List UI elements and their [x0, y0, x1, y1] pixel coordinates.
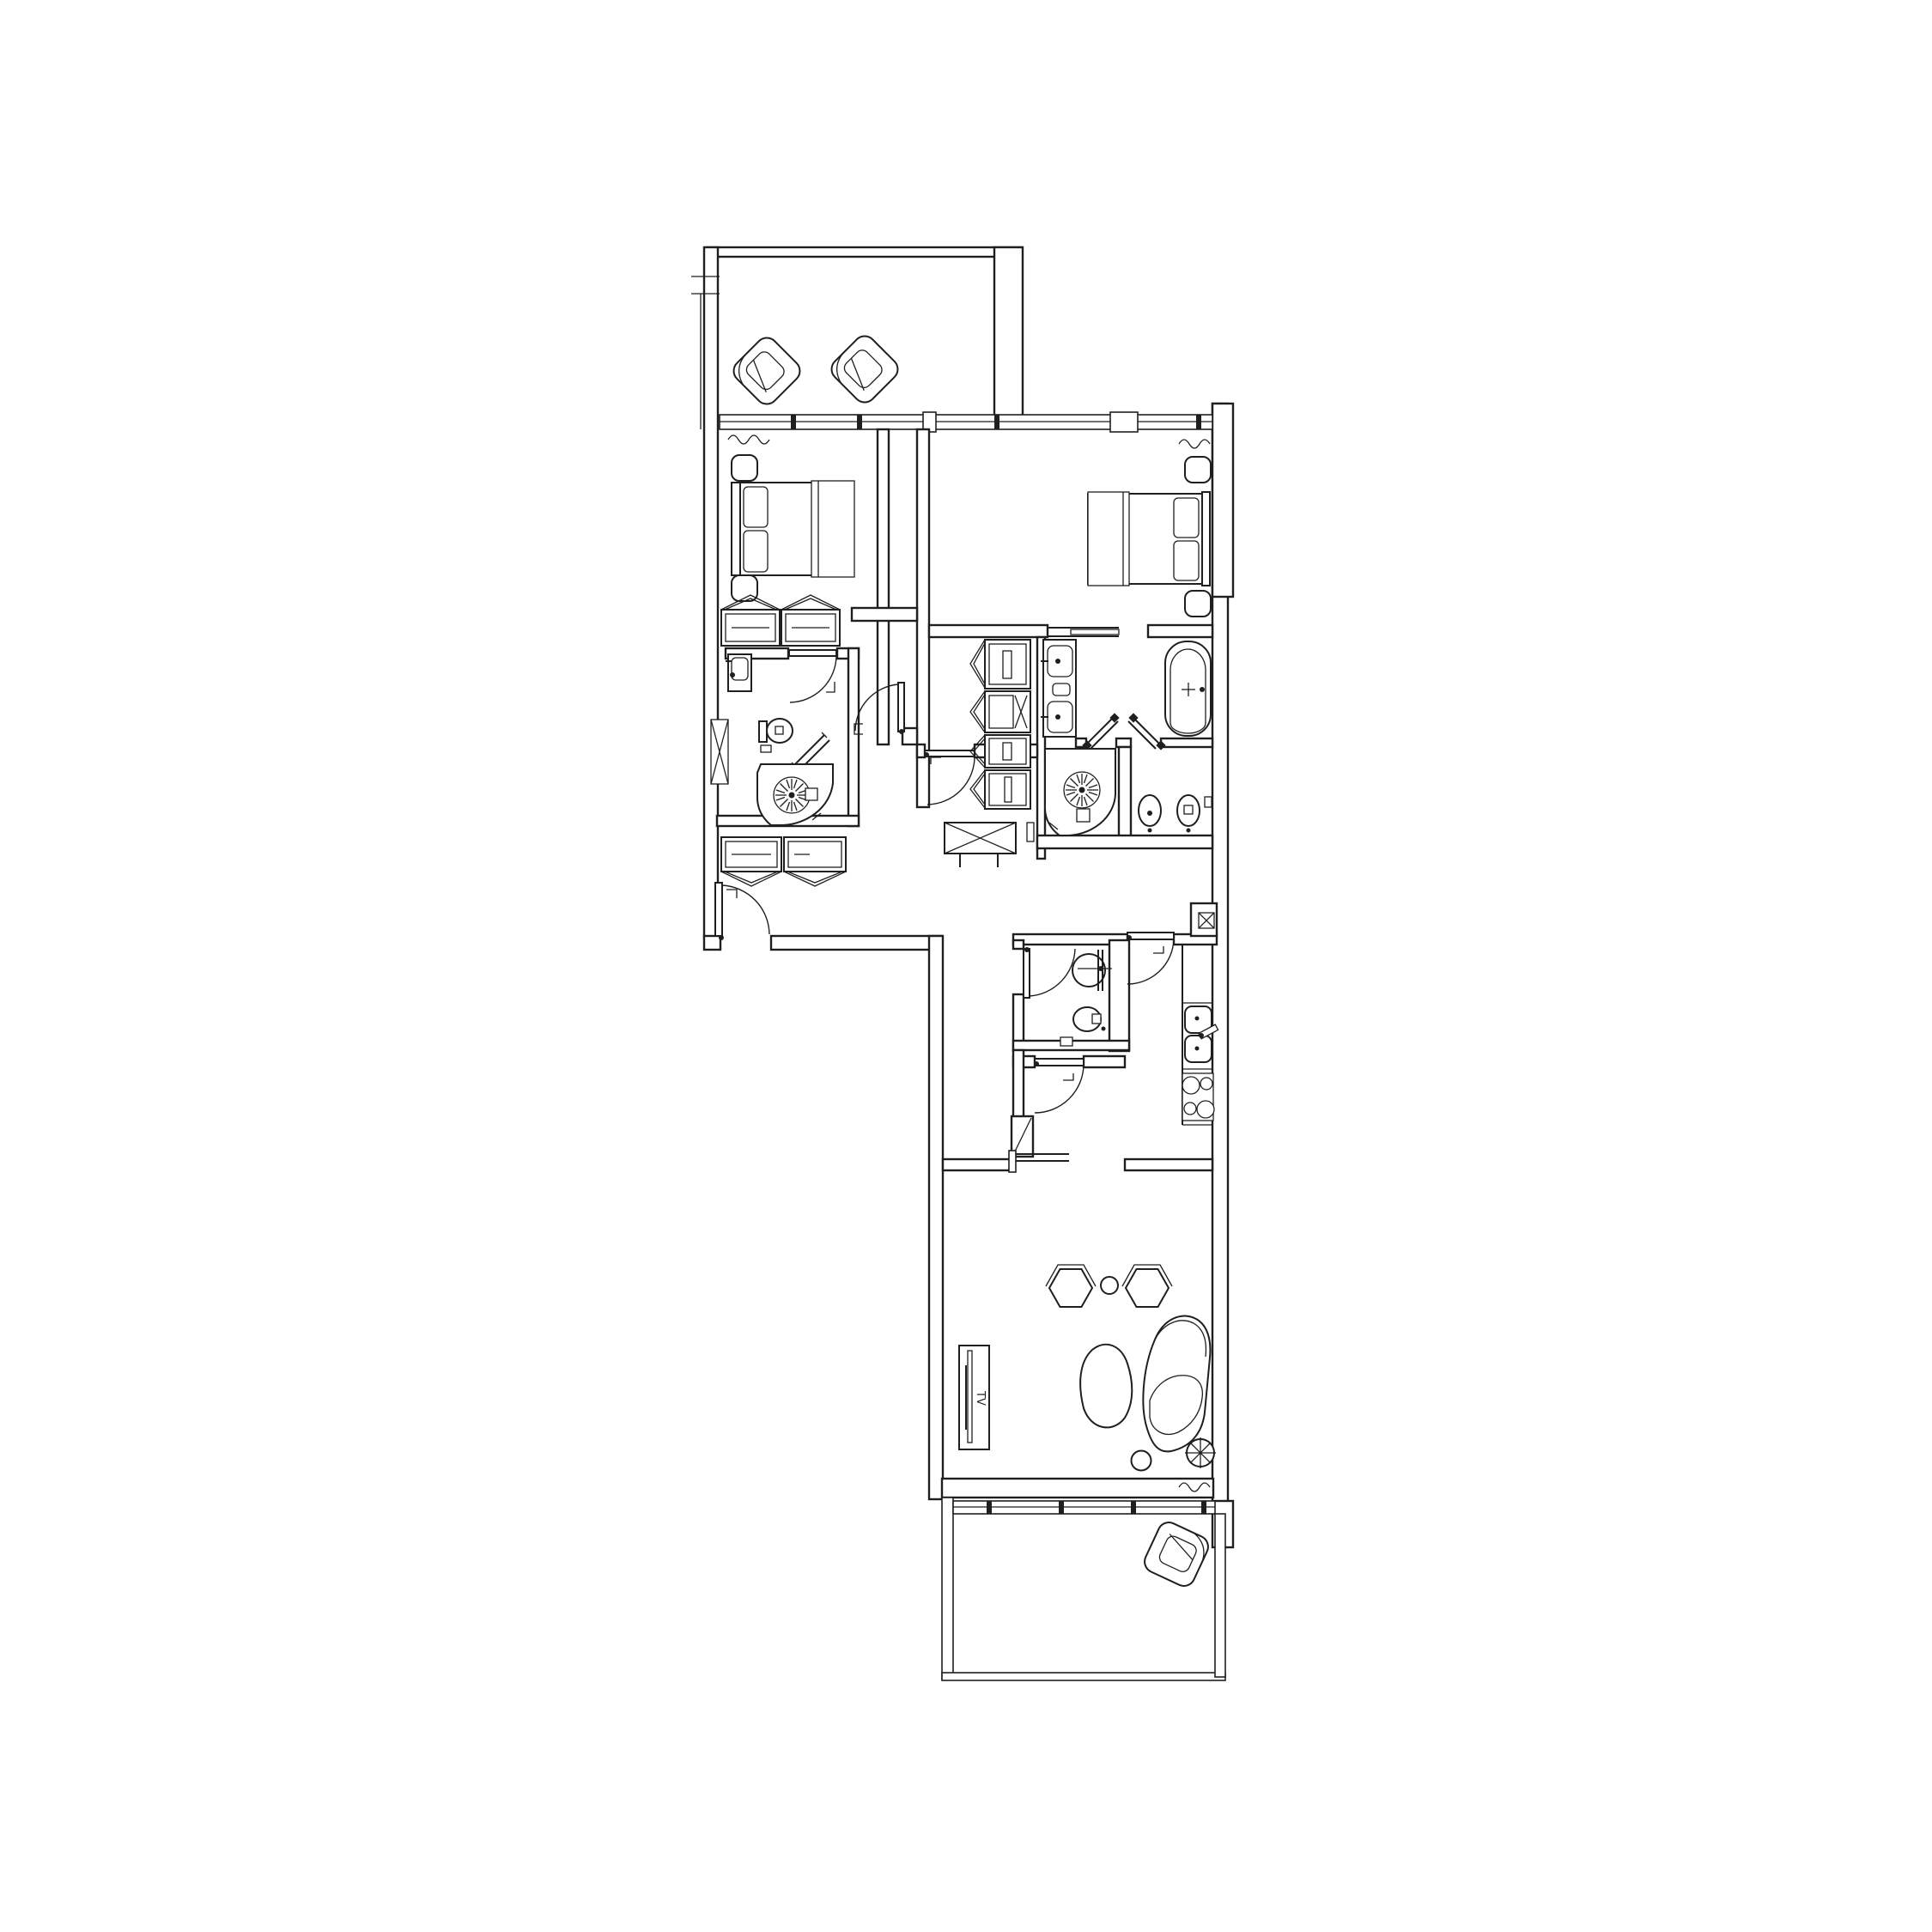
walkthrough-closet	[970, 640, 1030, 809]
tv-label: TV	[974, 1390, 987, 1406]
guest-wc	[1060, 950, 1112, 1046]
pouf-icon	[1132, 1451, 1151, 1471]
balcony-left-wall	[942, 1498, 953, 1680]
entry-wall-right	[771, 936, 942, 950]
luggage-bench-icon	[945, 823, 1034, 867]
exterior-walls	[691, 247, 1233, 1680]
lounge-chair-icon	[729, 333, 805, 409]
wall-fixture	[1060, 1037, 1072, 1046]
terrace-right-pier	[994, 247, 1023, 419]
curtain-squiggle	[728, 435, 769, 444]
left-outer-wall	[704, 247, 718, 939]
toilet-icon	[1177, 795, 1212, 833]
round-side-table-icon	[1101, 1277, 1118, 1294]
nightstand-icon	[1185, 591, 1211, 617]
swing-door-icon	[1127, 933, 1174, 984]
floor-plan-page: TV	[0, 0, 1932, 1932]
tv-bench-icon: TV	[959, 1346, 989, 1449]
window-post-wide	[1110, 412, 1138, 432]
swing-door-icon	[924, 750, 975, 805]
bathtub-icon	[1165, 641, 1211, 736]
nightstand-icon	[1185, 457, 1211, 483]
bedroom2-bottom-wall-right	[1148, 625, 1212, 637]
coffee-table-icon	[1080, 1345, 1132, 1428]
nightstand-icon	[732, 455, 757, 481]
balcony-right-wall	[1215, 1514, 1225, 1677]
living-room: TV	[959, 1265, 1216, 1471]
living-left-wall	[929, 936, 943, 1499]
entry-wall-left-stub	[704, 936, 720, 950]
upper-terrace	[729, 331, 902, 409]
floor-plan-drawing: TV	[0, 0, 1932, 1932]
bath-bottom-wall	[1037, 835, 1212, 848]
right-pier-upper	[1212, 404, 1233, 597]
lower-balcony	[1141, 1519, 1212, 1589]
washbasin-icon	[726, 654, 751, 691]
bedroom-left	[721, 455, 854, 646]
shower-wc-divider	[1119, 747, 1131, 837]
double-bed-icon	[1088, 492, 1210, 586]
hex-side-table-icon	[1122, 1265, 1172, 1307]
sliding-door-post	[1009, 1151, 1016, 1172]
vestibule-top-wall	[852, 608, 917, 621]
toilet-icon	[1073, 1007, 1106, 1031]
corner-sink-icon	[1072, 950, 1112, 991]
bidet-icon	[1139, 795, 1161, 833]
balcony-bottom-wall	[942, 1673, 1225, 1680]
lounge-chair-icon	[1141, 1519, 1212, 1589]
shaft-x-symbol	[711, 720, 728, 784]
double-bed-icon	[732, 481, 854, 577]
toilet-icon	[759, 719, 793, 752]
guestwc-right-wall	[1109, 940, 1129, 1051]
terrace-top-wall	[707, 247, 1022, 257]
wardrobe-icon	[721, 837, 846, 886]
bedroom2-bottom-wall-left	[929, 625, 1048, 637]
angled-wc-door-icon	[1128, 713, 1166, 750]
wardrobe-icon	[970, 640, 1030, 809]
hex-side-table-icon	[1046, 1265, 1096, 1307]
ensuite-right-wall	[848, 648, 859, 826]
lounge-chair-icon	[827, 331, 902, 407]
angled-shower-door-icon	[1082, 713, 1119, 750]
bedrooms-divider-left	[878, 429, 889, 744]
curtain-squiggle	[1179, 440, 1210, 448]
swing-door-icon	[789, 650, 836, 702]
entry-door-icon	[715, 883, 769, 940]
cooktop-icon	[1182, 1073, 1214, 1121]
wardrobe-icon	[721, 595, 840, 646]
curved-sofa-icon	[1143, 1316, 1210, 1452]
living-bottom-wall	[942, 1479, 1213, 1498]
nightstand-icon	[732, 575, 757, 601]
swing-door-icon	[1024, 947, 1075, 998]
sliding-door-panel-bedroom2	[1071, 629, 1119, 635]
hallway	[721, 823, 1034, 886]
bedroom-right	[1088, 457, 1211, 617]
round-shower-icon	[1045, 749, 1115, 835]
ensuite-left	[711, 654, 833, 825]
double-vanity-icon	[1041, 640, 1076, 737]
wc-room	[1139, 795, 1212, 833]
swing-door-icon	[1034, 1059, 1084, 1113]
